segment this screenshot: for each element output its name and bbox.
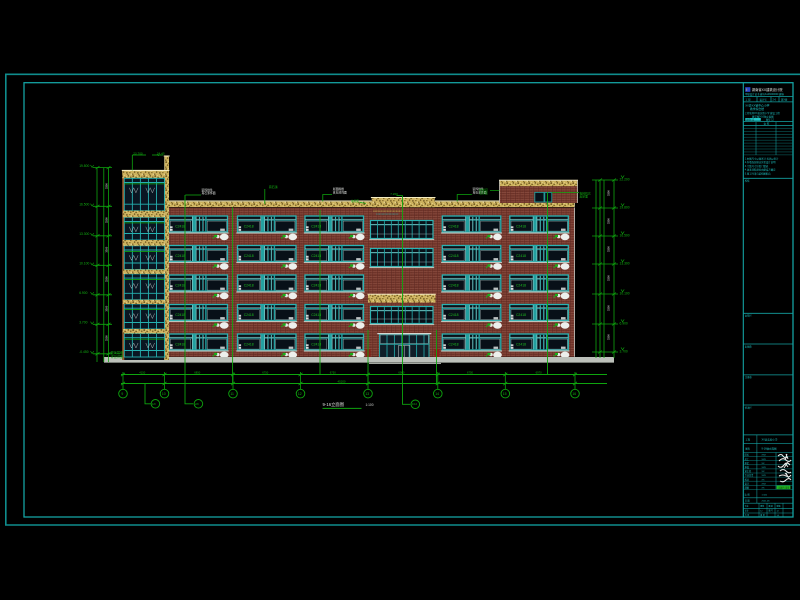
svg-text:11: 11 xyxy=(230,392,234,396)
svg-text:1:100: 1:100 xyxy=(762,495,768,497)
svg-text:3.门窗尺寸详见门窗表: 3.门窗尺寸详见门窗表 xyxy=(745,164,769,168)
svg-text:45200: 45200 xyxy=(338,380,346,384)
svg-text:1.本图尺寸以毫米计 标高以米计: 1.本图尺寸以毫米计 标高以米计 xyxy=(745,156,779,160)
svg-text:2/9: 2/9 xyxy=(195,402,199,406)
svg-text:1/9: 1/9 xyxy=(152,402,156,406)
svg-text:注册章: 注册章 xyxy=(745,375,753,379)
svg-text:6750: 6750 xyxy=(467,371,473,375)
svg-text:3300: 3300 xyxy=(104,305,108,311)
svg-text:13.300: 13.300 xyxy=(79,232,89,236)
svg-text:3300: 3300 xyxy=(104,183,108,189)
svg-text:建施: 建施 xyxy=(777,504,781,508)
svg-text:3.700: 3.700 xyxy=(79,321,87,325)
svg-text:审定: 审定 xyxy=(745,461,750,465)
svg-text:9-16轴立面图: 9-16轴立面图 xyxy=(762,446,778,450)
svg-text:第X册: 第X册 xyxy=(781,97,788,101)
svg-text:出屋面: 出屋面 xyxy=(580,195,589,199)
svg-text:2021.06: 2021.06 xyxy=(762,501,771,503)
svg-text:湖南省XX建筑设计院: 湖南省XX建筑设计院 xyxy=(752,87,783,92)
svg-text:XXX: XXX xyxy=(762,483,767,485)
svg-text:6750: 6750 xyxy=(330,371,336,375)
svg-text:9: 9 xyxy=(121,392,123,396)
svg-text:坡屋面: 坡屋面 xyxy=(351,199,359,203)
svg-text:1:100: 1:100 xyxy=(366,403,374,407)
svg-text:XXX: XXX xyxy=(762,455,767,457)
svg-text:建筑: 建筑 xyxy=(760,504,764,508)
svg-text:设计: 设计 xyxy=(745,481,750,485)
svg-text:14: 14 xyxy=(435,392,439,396)
svg-text:6970: 6970 xyxy=(536,371,542,375)
svg-text:2-6: 2-6 xyxy=(773,98,777,101)
svg-text:真石漆饰面: 真石漆饰面 xyxy=(333,190,347,194)
svg-text:I: I xyxy=(746,88,747,92)
svg-text:12: 12 xyxy=(298,392,302,396)
svg-text:甲级设计证书 编号A143000000 建施: 甲级设计证书 编号A143000000 建施 xyxy=(745,92,784,96)
svg-text:-0.450: -0.450 xyxy=(79,350,89,354)
svg-text:教学楼9-16轴立面图: 教学楼9-16轴立面图 xyxy=(752,114,774,118)
svg-text:16.500: 16.500 xyxy=(79,203,89,207)
svg-text:10: 10 xyxy=(162,392,166,396)
svg-text:3300: 3300 xyxy=(607,190,611,196)
svg-text:校核: 校核 xyxy=(745,179,750,183)
svg-text:6.900: 6.900 xyxy=(620,322,628,326)
svg-text:真石漆: 真石漆 xyxy=(269,184,278,189)
svg-text:3300: 3300 xyxy=(607,305,611,311)
svg-text:6.900: 6.900 xyxy=(79,291,87,295)
svg-text:制图: 制图 xyxy=(745,486,749,490)
svg-text:3300: 3300 xyxy=(607,334,611,340)
svg-text:工程: 工程 xyxy=(745,437,750,441)
svg-text:2.外墙面层做法详见设计说明: 2.外墙面层做法详见设计说明 xyxy=(745,160,776,164)
svg-text:XXX: XXX xyxy=(762,459,767,461)
svg-text:7.200: 7.200 xyxy=(390,192,398,196)
svg-text:XXX: XXX xyxy=(762,467,767,469)
svg-text:12: 12 xyxy=(760,511,763,513)
svg-text:4.油漆涂料颜色由建设方确定: 4.油漆涂料颜色由建设方确定 xyxy=(745,168,776,172)
svg-text:3300: 3300 xyxy=(607,246,611,252)
svg-text:16: 16 xyxy=(572,392,576,396)
svg-text:XXX: XXX xyxy=(762,475,767,477)
svg-text:会签栏: 会签栏 xyxy=(745,314,753,318)
svg-text:6750: 6750 xyxy=(262,371,268,375)
svg-text:设计: 设计 xyxy=(745,509,749,513)
svg-text:10.100: 10.100 xyxy=(620,292,630,296)
svg-text:工程名称XX县实验小学 建设工程: 工程名称XX县实验小学 建设工程 xyxy=(745,111,781,115)
svg-text:详见详图: 详见详图 xyxy=(111,354,124,359)
svg-text:16.500: 16.500 xyxy=(620,234,630,238)
svg-text:3300: 3300 xyxy=(104,335,108,341)
svg-text:比 例: 比 例 xyxy=(745,493,751,497)
svg-text:10.100: 10.100 xyxy=(79,262,89,266)
svg-text:审核: 审核 xyxy=(745,465,750,469)
svg-text:19.800: 19.800 xyxy=(79,164,89,168)
svg-text:1/12: 1/12 xyxy=(412,402,418,406)
svg-text:6850: 6850 xyxy=(194,371,200,375)
svg-text:共 张: 共 张 xyxy=(745,513,750,517)
svg-text:13: 13 xyxy=(365,392,369,396)
svg-text:12: 12 xyxy=(777,511,780,513)
svg-text:3300: 3300 xyxy=(104,276,108,282)
svg-text:室主任: 室主任 xyxy=(745,469,752,473)
svg-text:图名: 图名 xyxy=(745,446,750,450)
svg-text:日 期: 日 期 xyxy=(745,499,751,503)
svg-text:3300: 3300 xyxy=(104,217,108,223)
svg-text:22.200: 22.200 xyxy=(620,178,630,182)
svg-text:修改栏: 修改栏 xyxy=(745,405,753,409)
svg-text:出屋面: 出屋面 xyxy=(479,191,488,195)
svg-text:图 别: 图 别 xyxy=(769,504,774,508)
svg-text:××××××××××××××××: ×××××××××××××××× xyxy=(376,213,399,216)
svg-text:设计号: 设计号 xyxy=(760,97,768,101)
svg-text:15: 15 xyxy=(503,392,507,396)
svg-text:教学综合楼: 教学综合楼 xyxy=(750,107,764,111)
svg-text:校对: 校对 xyxy=(745,477,750,481)
svg-text:13.300: 13.300 xyxy=(620,262,630,266)
svg-text:XX县实验小学: XX县实验小学 xyxy=(762,437,778,441)
svg-text:5.施工时请与结构图配合: 5.施工时请与结构图配合 xyxy=(745,172,772,176)
svg-text:3.700: 3.700 xyxy=(620,350,628,354)
svg-text:专业负责: 专业负责 xyxy=(745,473,755,477)
svg-text:专业: 专业 xyxy=(745,504,749,508)
svg-text:19.800: 19.800 xyxy=(620,206,630,210)
svg-text:院长: 院长 xyxy=(745,453,750,457)
svg-text:真石漆饰面: 真石漆饰面 xyxy=(202,191,216,195)
svg-text:3300: 3300 xyxy=(607,275,611,281)
svg-text:图 号: 图 号 xyxy=(769,509,774,513)
svg-text:3300: 3300 xyxy=(607,218,611,224)
svg-text:9-16立面图: 9-16立面图 xyxy=(323,401,345,408)
svg-text:4150: 4150 xyxy=(139,371,145,375)
svg-text:6980: 6980 xyxy=(398,371,404,375)
svg-text:出图章: 出图章 xyxy=(745,344,753,348)
svg-text:3300: 3300 xyxy=(104,246,108,252)
svg-text:会 签: 会 签 xyxy=(764,121,770,125)
svg-text:第 张: 第 张 xyxy=(760,513,765,517)
svg-text:总工: 总工 xyxy=(745,457,750,461)
svg-text:工 程: 工 程 xyxy=(745,97,751,101)
